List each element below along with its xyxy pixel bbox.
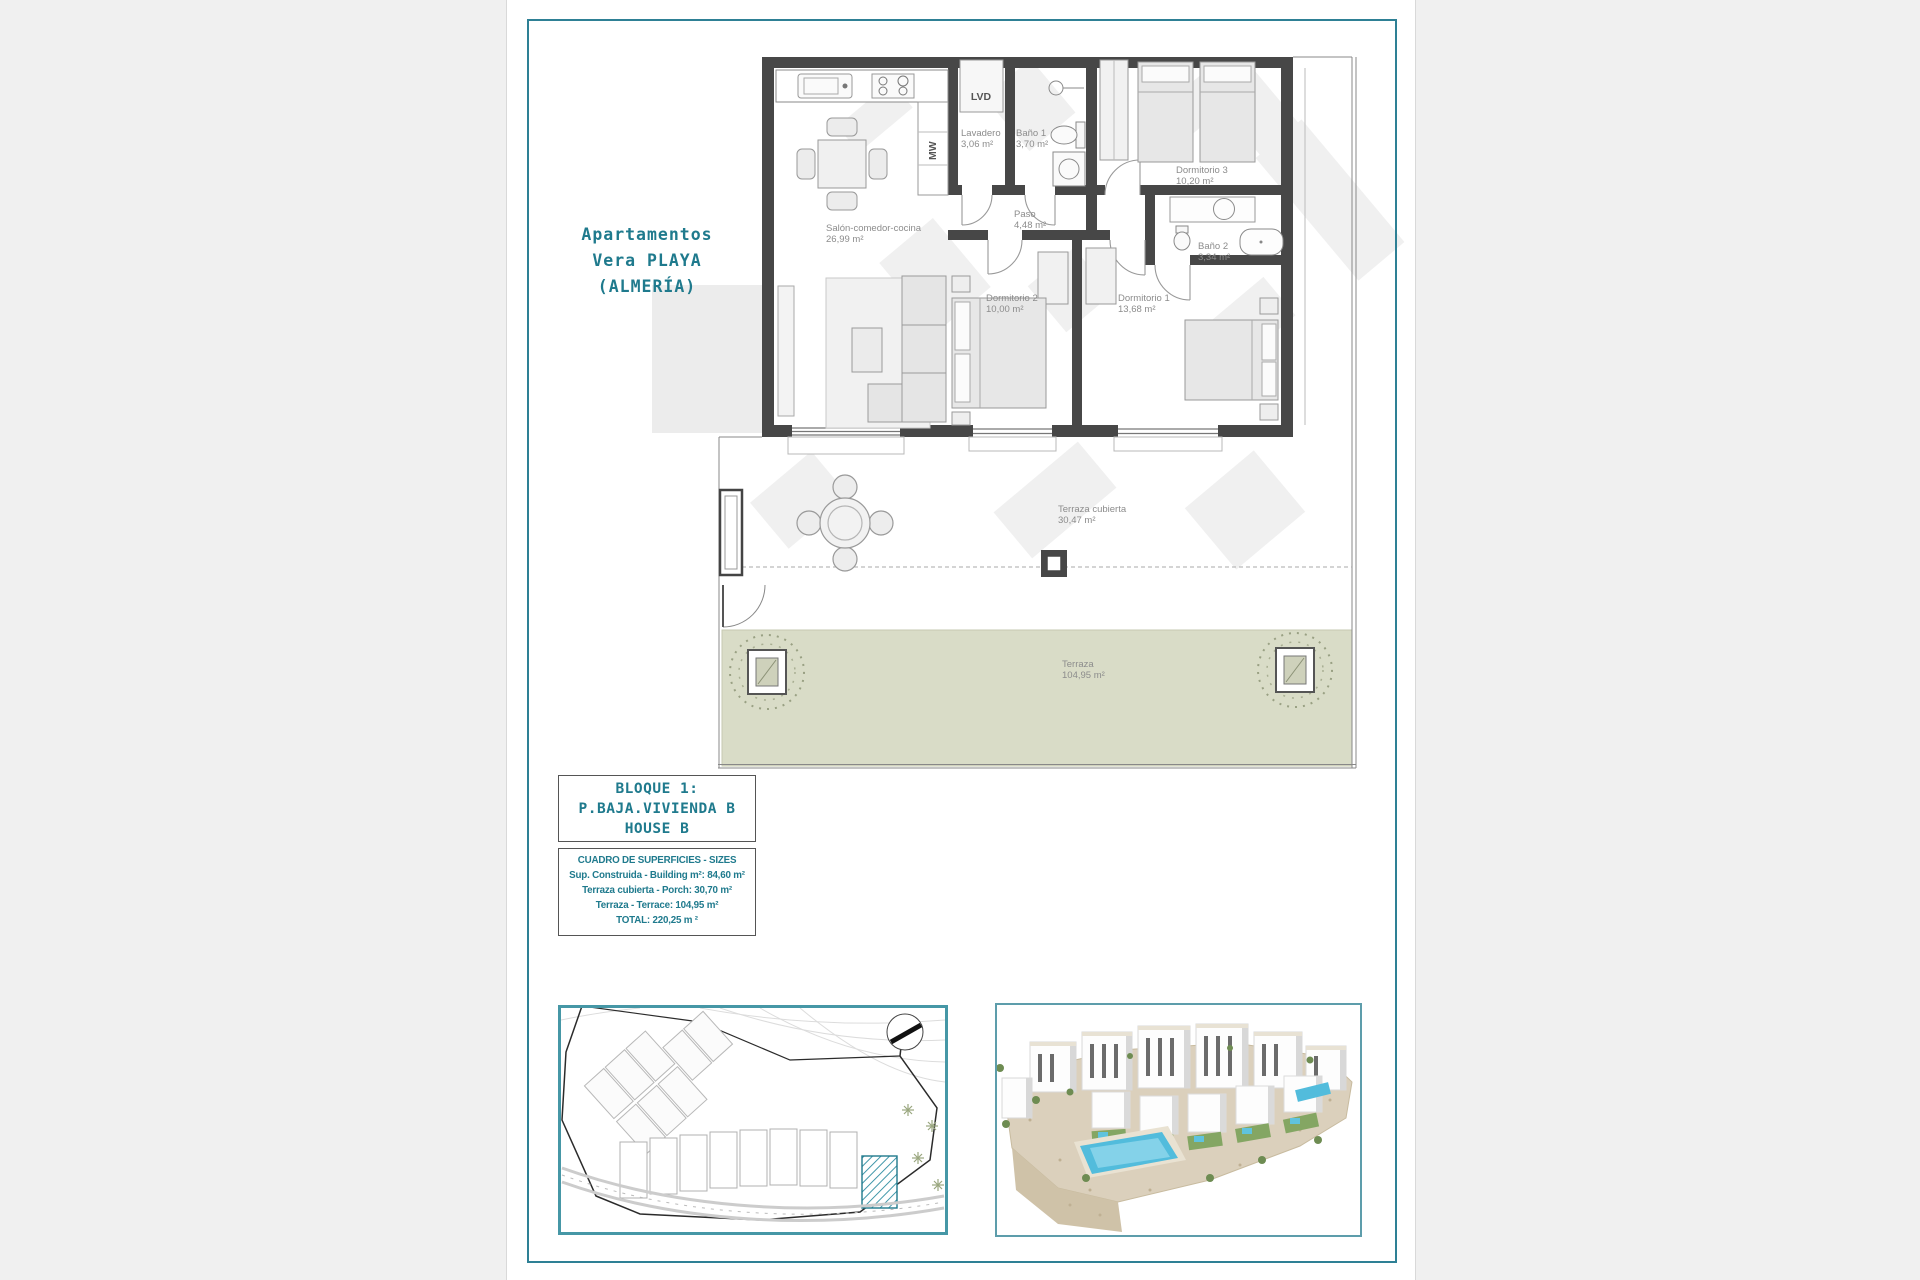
title-line-3: (ALMERÍA) <box>558 274 736 300</box>
plan-sheet: Terraza 104,95 m² <box>0 0 1920 1280</box>
block-line-3: HOUSE B <box>559 819 755 839</box>
sizes-row-terrace: Terraza - Terrace: 104,95 m² <box>559 898 755 913</box>
page-border-frame <box>527 19 1397 1263</box>
sizes-row-total: TOTAL: 220,25 m ² <box>559 913 755 928</box>
sizes-table-box: CUADRO DE SUPERFICIES - SIZES Sup. Const… <box>558 848 756 936</box>
project-title: Apartamentos Vera PLAYA (ALMERÍA) <box>558 222 736 300</box>
sizes-table-title: CUADRO DE SUPERFICIES - SIZES <box>559 853 755 868</box>
sizes-row-porch: Terraza cubierta - Porch: 30,70 m² <box>559 883 755 898</box>
title-line-1: Apartamentos <box>558 222 736 248</box>
block-line-2: P.BAJA.VIVIENDA B <box>559 799 755 819</box>
title-line-2: Vera PLAYA <box>558 248 736 274</box>
block-label-box: BLOQUE 1: P.BAJA.VIVIENDA B HOUSE B <box>558 775 756 842</box>
sizes-row-building: Sup. Construida - Building m²: 84,60 m² <box>559 868 755 883</box>
block-line-1: BLOQUE 1: <box>559 779 755 799</box>
